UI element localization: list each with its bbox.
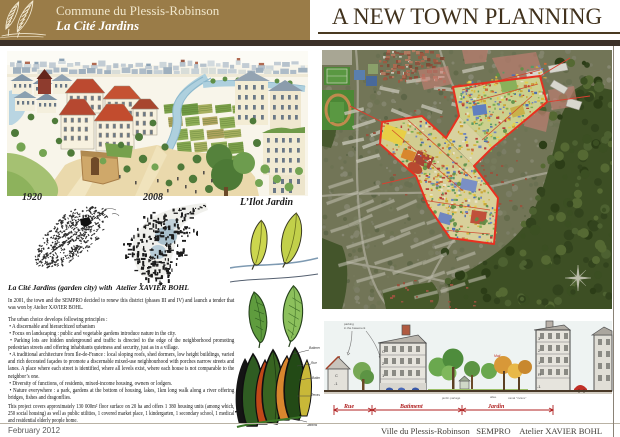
svg-text:Batiment: Batiment [312, 376, 320, 380]
svg-text:Rue: Rue [311, 361, 317, 365]
svg-text:C: C [335, 373, 338, 378]
svg-text:jardin partagé: jardin partagé [441, 396, 461, 400]
svg-text:Terrasse: Terrasse [311, 393, 320, 397]
svg-text:Batiment: Batiment [399, 404, 423, 410]
svg-text:Jardin: Jardin [487, 404, 505, 410]
svg-text:Rue: Rue [343, 404, 354, 410]
svg-text:allée: allée [490, 395, 497, 399]
svg-text:canal "rivière": canal "rivière" [508, 396, 526, 400]
svg-text:Mail: Mail [494, 354, 500, 358]
svg-text:R: R [538, 372, 541, 377]
svg-text:Batiment: Batiment [309, 346, 320, 350]
svg-text:in the basement: in the basement [344, 326, 366, 330]
svg-text:C: C [382, 349, 385, 354]
